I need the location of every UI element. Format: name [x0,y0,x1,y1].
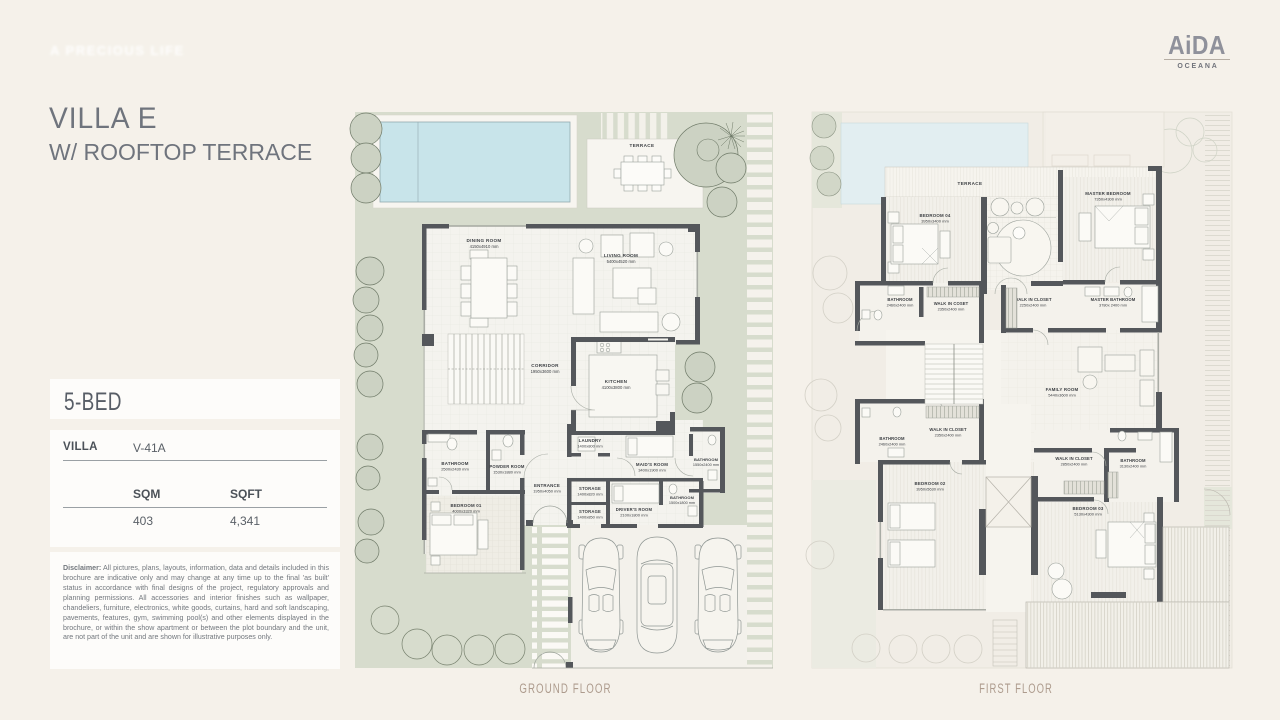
svg-text:TERRACE: TERRACE [629,143,654,148]
svg-text:STORAGE: STORAGE [579,486,601,491]
svg-text:3130x2400 mm: 3130x2400 mm [1120,464,1147,469]
svg-text:POWDER ROOM: POWDER ROOM [489,464,525,469]
svg-text:2100x1800 mm: 2100x1800 mm [620,513,648,518]
svg-text:BEDROOM 04: BEDROOM 04 [919,213,950,218]
svg-text:2350x2400 mm: 2350x2400 mm [938,307,965,312]
svg-text:BATHROOM: BATHROOM [670,495,695,500]
svg-text:MAID'S ROOM: MAID'S ROOM [636,462,668,467]
svg-text:CORRIDOR: CORRIDOR [531,363,559,368]
svg-text:3950x5630 mm: 3950x5630 mm [916,487,944,492]
svg-text:2500x2430 mm: 2500x2430 mm [441,467,469,472]
svg-text:5440x3600 mm: 5440x3600 mm [1048,393,1076,398]
svg-text:5400x4520 mm: 5400x4520 mm [607,259,636,264]
svg-text:5130x4300 mm: 5130x4300 mm [1074,512,1102,517]
svg-text:STORAGE: STORAGE [579,509,601,514]
svg-text:BATHROOM: BATHROOM [694,457,719,462]
svg-text:WALK IN CLOSET: WALK IN CLOSET [929,427,967,432]
svg-text:LAUNDRY: LAUNDRY [579,438,602,443]
svg-text:2850x2400 mm: 2850x2400 mm [1061,462,1088,467]
svg-text:3400x1900 mm: 3400x1900 mm [638,468,666,473]
svg-text:1950x3600 mm: 1950x3600 mm [531,369,560,374]
svg-text:BEDROOM 01: BEDROOM 01 [450,503,481,508]
svg-text:BATHROOM: BATHROOM [1120,458,1146,463]
svg-text:TERRACE: TERRACE [957,181,982,186]
svg-text:ENTRANCE: ENTRANCE [534,483,560,488]
svg-text:DINING ROOM: DINING ROOM [467,238,502,243]
svg-text:BEDROOM 02: BEDROOM 02 [914,481,945,486]
svg-text:1950x4050 mm: 1950x4050 mm [533,489,561,494]
svg-text:FAMILY ROOM: FAMILY ROOM [1046,387,1079,392]
svg-text:2250x2400 mm: 2250x2400 mm [1020,303,1047,308]
svg-text:LIVING ROOM: LIVING ROOM [604,253,638,258]
svg-text:1400x850 mm: 1400x850 mm [577,515,603,520]
svg-text:7350x4300 mm: 7350x4300 mm [1094,197,1122,202]
svg-text:BATHROOM: BATHROOM [879,436,905,441]
svg-text:BEDROOM 03: BEDROOM 03 [1072,506,1103,511]
svg-text:2350x2400 mm: 2350x2400 mm [935,433,962,438]
svg-text:3950x3400 mm: 3950x3400 mm [921,219,949,224]
svg-text:1500x1800 mm: 1500x1800 mm [669,501,695,505]
svg-text:DRIVER'S ROOM: DRIVER'S ROOM [616,507,653,512]
svg-text:MASTER BEDROOM: MASTER BEDROOM [1085,191,1131,196]
svg-text:BATHROOM: BATHROOM [887,297,913,302]
svg-text:2460x2400 mm: 2460x2400 mm [887,303,914,308]
svg-text:2460x2400 mm: 2460x2400 mm [879,442,906,447]
svg-text:3780x 2400 mm: 3780x 2400 mm [1099,303,1127,308]
svg-text:BATHROOM: BATHROOM [441,461,468,466]
svg-text:KITCHEN: KITCHEN [605,379,628,384]
svg-text:4100x3800 mm: 4100x3800 mm [602,385,631,390]
svg-text:WALK IN COSET: WALK IN COSET [934,301,969,306]
svg-text:4150x4910 mm: 4150x4910 mm [470,244,499,249]
svg-text:1400x820 mm: 1400x820 mm [577,492,603,497]
svg-text:4000x3320 mm: 4000x3320 mm [452,509,480,514]
svg-text:WALK IN CLOSET: WALK IN CLOSET [1055,456,1093,461]
svg-text:1550x2400 mm: 1550x2400 mm [693,463,719,467]
svg-text:1530x1880 mm: 1530x1880 mm [493,470,521,475]
svg-text:MASTER BATHROOM: MASTER BATHROOM [1091,297,1136,302]
svg-text:WALK IN CLOSET: WALK IN CLOSET [1014,297,1052,302]
svg-text:1400x800 mm: 1400x800 mm [577,444,603,449]
